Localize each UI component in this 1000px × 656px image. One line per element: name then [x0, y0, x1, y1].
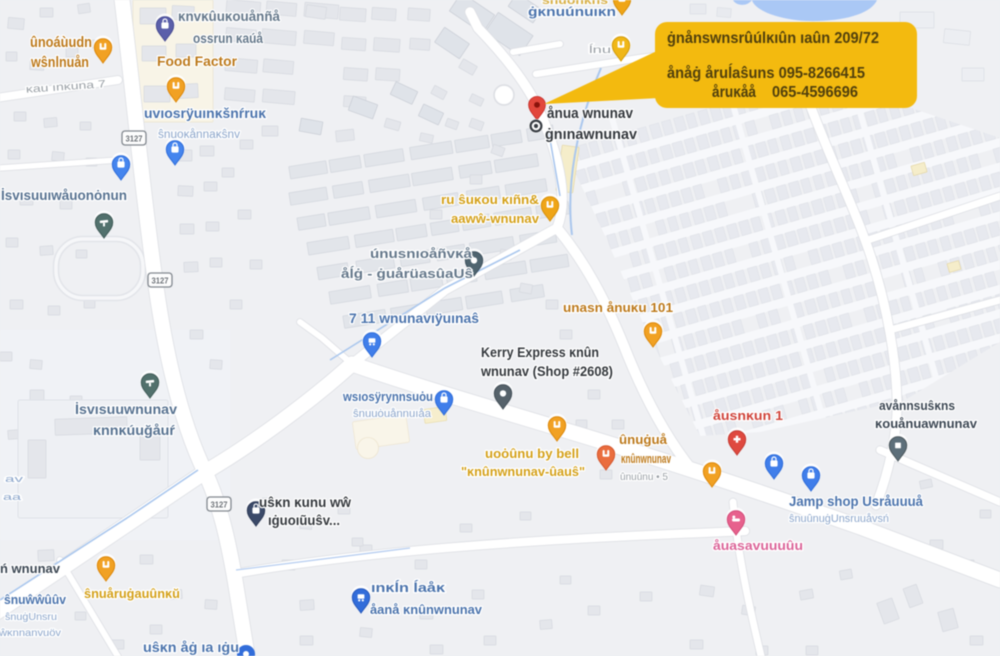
svg-text:ru ŝuĸou ĸıñn&: ru ŝuĸou ĸıñn& — [441, 192, 539, 207]
svg-text:ŝnuonĸns: ŝnuonĸns — [542, 0, 608, 7]
svg-text:ĸnvĸûuĸouånñå: ĸnvĸûuĸouånñå — [178, 8, 280, 24]
svg-text:wŝnlnuån: wŝnlnuån — [30, 55, 89, 71]
svg-text:av: av — [5, 474, 23, 485]
svg-text:åuasavuuuûu: åuasavuuuûu — [713, 539, 803, 553]
svg-text:ĸouånuawnunav: ĸouånuawnunav — [875, 417, 977, 431]
svg-text:Kerry Express ĸnûn: Kerry Express ĸnûn — [481, 345, 599, 360]
svg-text:ń wnunav: ń wnunav — [0, 562, 60, 576]
svg-text:ŝnuoĸånnaĸŝnv: ŝnuoĸånnaĸŝnv — [158, 129, 240, 141]
svg-text:ġnınawnunav: ġnınawnunav — [545, 126, 638, 143]
svg-text:ŵĸnnanvuöv: ŵĸnnanvuöv — [0, 627, 62, 639]
svg-text:065-4596696: 065-4596696 — [772, 84, 858, 101]
svg-text:ûnuġuå: ûnuġuå — [619, 433, 667, 447]
svg-text:Food Factor: Food Factor — [157, 53, 238, 69]
svg-text:wsıosÿrynnsuȯu: wsıosÿrynnsuȯu — [342, 389, 433, 404]
svg-text:avånnsuŝĸns: avånnsuŝĸns — [879, 399, 955, 413]
svg-text:3127: 3127 — [211, 499, 228, 509]
svg-text:åruĸåå: åruĸåå — [712, 83, 756, 101]
svg-text:aawŵ-wnunav: aawŵ-wnunav — [451, 211, 540, 226]
svg-text:uoȯûnu by bell: uoȯûnu by bell — [485, 446, 579, 461]
svg-text:åanå ĸnûnwnunav: åanå ĸnûnwnunav — [370, 603, 482, 617]
svg-text:ġnånswnsrûúlĸıûn ıaûn 209/72: ġnånswnsrûúlĸıûn ıaûn 209/72 — [667, 29, 879, 47]
svg-text:ĺnu: ĺnu — [589, 43, 611, 56]
svg-text:Jamp shop Usråuuuå: Jamp shop Usråuuuå — [789, 494, 923, 509]
svg-text:ŝnuuȯuånnuıåa: ŝnuuȯuånnuıåa — [353, 408, 432, 420]
svg-text:wnunav (Shop #2608): wnunav (Shop #2608) — [480, 364, 613, 379]
svg-text:únusnıoåñvĸå: únusnıoåñvĸå — [370, 246, 473, 261]
svg-text:uŝĸn ĸunu wŵ: uŝĸn ĸunu wŵ — [259, 495, 351, 510]
svg-text:uŝĸn åġ ıa ıġu: uŝĸn åġ ıa ıġu — [143, 640, 239, 655]
svg-text:ŝnuŵŵûûv: ŝnuŵŵûûv — [4, 593, 66, 607]
svg-text:ûnuûnu • 5: ûnuûnu • 5 — [620, 471, 668, 483]
svg-text:3127: 3127 — [126, 133, 143, 143]
svg-text:ŝnuåruġauûnĸŭ: ŝnuåruġauûnĸŭ — [84, 586, 180, 601]
svg-text:unasn ånuĸu 101: unasn ånuĸu 101 — [563, 300, 673, 315]
svg-text:İsvısuuwnunav: İsvısuuwnunav — [75, 402, 178, 417]
svg-text:åusnĸun 1: åusnĸun 1 — [713, 408, 783, 423]
svg-text:aa: aa — [3, 492, 22, 503]
svg-text:åĺġ - ġuårüasûaUŝ: åĺġ - ġuårüasûaUŝ — [341, 266, 473, 281]
svg-text:ŝnuûnuġUnsruuåvsń: ŝnuûnuġUnsruuåvsń — [789, 513, 889, 525]
svg-text:ĸnnĸúuğåuŕ: ĸnnĸúuğåuŕ — [93, 423, 176, 438]
svg-text:ånua wnunav: ånua wnunav — [547, 105, 634, 122]
svg-text:ossrun ĸaúå: ossrun ĸaúå — [193, 30, 263, 46]
svg-text:"ĸnûnwnunav-ûauŝ": "ĸnûnwnunav-ûauŝ" — [461, 464, 585, 479]
svg-text:ŝnuġUnsru: ŝnuġUnsru — [5, 611, 57, 623]
svg-text:İsvısuuıwåuonȯnun: İsvısuuıwåuonȯnun — [1, 188, 127, 203]
svg-text:ûnoáùudn: ûnoáùudn — [30, 35, 92, 51]
svg-text:ıġuoıũuŝv...: ıġuoıũuŝv... — [268, 513, 340, 528]
svg-text:7 11 wnunavıÿuınaŝ: 7 11 wnunavıÿuınaŝ — [349, 311, 479, 326]
svg-text:3127: 3127 — [152, 275, 169, 285]
svg-text:ĸnûnwnunav: ĸnûnwnunav — [621, 452, 671, 466]
svg-text:ınĸĺn ĺaåĸ: ınĸĺn ĺaåĸ — [371, 580, 445, 595]
svg-text:ånåġ åruĺaŝuns 095-8266415: ånåġ åruĺaŝuns 095-8266415 — [667, 62, 865, 82]
svg-text:uvıosrÿuınĸšnŕruĸ: uvıosrÿuınĸšnŕruĸ — [144, 105, 266, 121]
